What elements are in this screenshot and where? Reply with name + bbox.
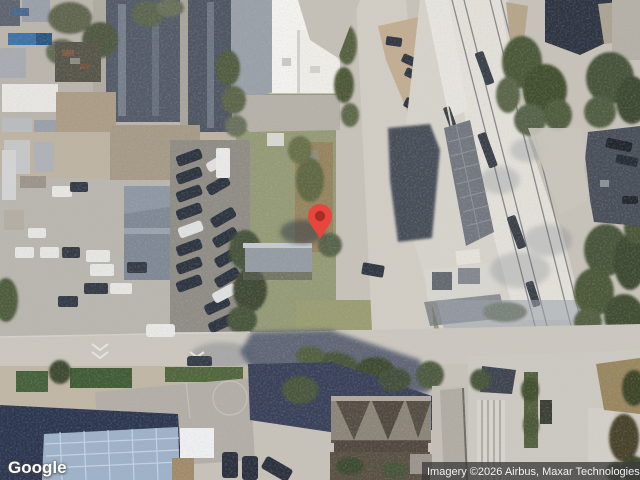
svg-text:Google: Google — [8, 458, 67, 477]
svg-text:Imagery ©2026 Airbus, Maxar Te: Imagery ©2026 Airbus, Maxar Technologies — [427, 466, 640, 478]
